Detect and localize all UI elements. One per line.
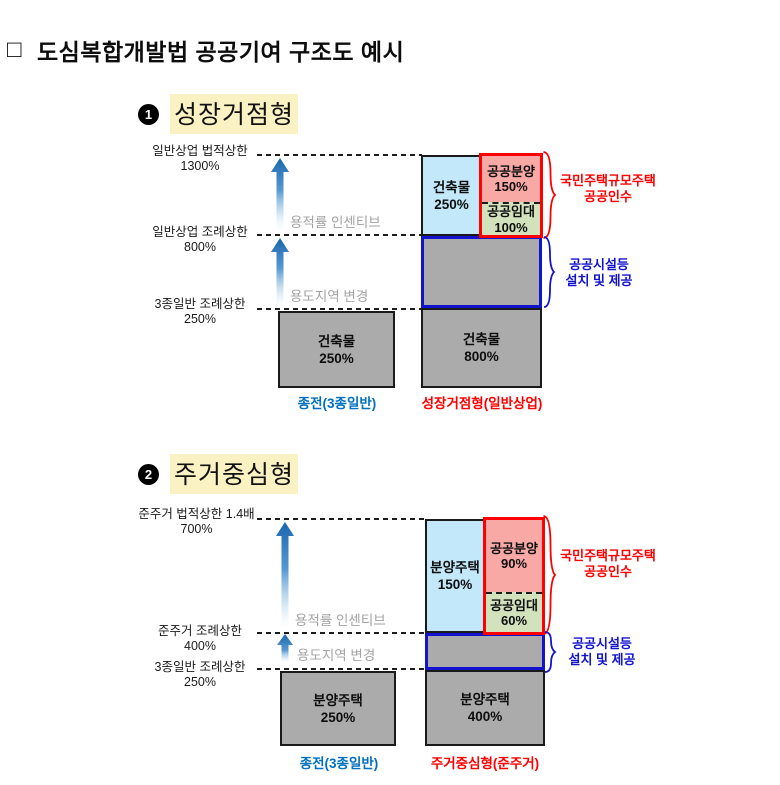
d1-public-sale-name: 공공분양 <box>487 164 535 180</box>
d1-blue-note-line1: 공공시설등 <box>548 257 650 273</box>
d1-blue-note-line2: 설치 및 제공 <box>548 273 650 289</box>
d1-axis3-name: 3종일반 조례상한 <box>143 297 257 312</box>
d1-before-box: 건축물 250% <box>278 311 395 388</box>
d1-before-box-pct: 250% <box>319 350 354 367</box>
d2-red-note-line1: 국민주택규모주택 <box>550 548 666 564</box>
section2-title: 주거중심형 <box>170 454 298 494</box>
d2-before-caption: 종전(3종일반) <box>274 752 404 772</box>
d2-red-note-line2: 공공인수 <box>550 564 666 580</box>
page-title: □ 도심복합개발법 공공기여 구조도 예시 <box>7 33 404 67</box>
d1-public-rent-name: 공공임대 <box>487 204 535 220</box>
d2-public-rent-box: 공공임대 60% <box>486 592 542 632</box>
d2-base-box-name: 분양주택 <box>460 691 510 708</box>
d1-before-caption: 종전(3종일반) <box>272 392 402 412</box>
d1-axis1-value: 1300% <box>143 159 257 174</box>
d1-red-note-line2: 공공인수 <box>550 189 666 205</box>
d2-axis3-value: 250% <box>143 675 257 690</box>
d1-incentive-label: 용적률 인센티브 <box>290 211 381 231</box>
d1-public-housing-group: 공공분양 150% 공공임대 100% <box>479 153 543 238</box>
d1-incentive-arrow-icon <box>270 158 290 230</box>
d2-before-box-name: 분양주택 <box>313 692 363 709</box>
d2-public-sale-box: 공공분양 90% <box>486 520 542 592</box>
d1-base-box: 건축물 800% <box>421 308 542 388</box>
d2-zone-change-label: 용도지역 변경 <box>297 644 375 664</box>
d1-zone-change-arrow-icon <box>270 238 290 306</box>
d1-axis-label-1: 일반상업 법적상한 1300% <box>143 144 257 174</box>
d2-before-box: 분양주택 250% <box>280 671 396 746</box>
page: □ 도심복합개발법 공공기여 구조도 예시 1 성장거점형 일반상업 법적상한 … <box>0 0 780 785</box>
d2-incentive-label: 용적률 인센티브 <box>295 609 386 629</box>
d1-public-rent-pct: 100% <box>494 220 527 236</box>
d2-axis1-name: 준주거 법적상한 1.4배 <box>136 507 257 522</box>
d2-building-box-pct: 150% <box>438 576 473 593</box>
d2-public-sale-name: 공공분양 <box>490 541 538 557</box>
d1-public-facility-note: 공공시설등 설치 및 제공 <box>548 257 650 288</box>
page-title-text: 도심복합개발법 공공기여 구조도 예시 <box>37 33 404 67</box>
d2-before-box-pct: 250% <box>321 709 356 726</box>
d1-after-caption: 성장거점형(일반상업) <box>410 392 554 412</box>
d2-building-box: 분양주택 150% <box>425 519 485 633</box>
d1-building-box-name: 건축물 <box>433 179 470 196</box>
d2-axis-label-2: 준주거 조례상한 400% <box>143 624 257 654</box>
d2-dashline-legal-limit <box>257 518 425 520</box>
d2-axis-label-1: 준주거 법적상한 1.4배 700% <box>136 507 257 537</box>
d2-public-housing-group: 공공분양 90% 공공임대 60% <box>483 517 545 635</box>
d1-dashline-base-limit <box>257 308 422 310</box>
d2-axis-label-3: 3종일반 조례상한 250% <box>143 660 257 690</box>
d2-public-facility-box <box>425 633 545 670</box>
d2-axis1-value: 700% <box>136 522 257 537</box>
d1-axis-label-2: 일반상업 조례상한 800% <box>143 225 257 255</box>
d2-blue-note-line2: 설치 및 제공 <box>551 652 653 668</box>
section2-number-icon: 2 <box>138 464 159 485</box>
d2-incentive-arrow-icon <box>275 522 295 628</box>
d1-axis1-name: 일반상업 법적상한 <box>143 144 257 159</box>
section2-heading: 2 주거중심형 <box>138 454 298 494</box>
d1-public-facility-box <box>421 236 542 308</box>
d2-public-facility-note: 공공시설등 설치 및 제공 <box>551 636 653 667</box>
d1-public-sale-pct: 150% <box>494 179 527 195</box>
d2-axis2-value: 400% <box>143 639 257 654</box>
d2-public-sale-pct: 90% <box>501 556 527 572</box>
d2-public-housing-note: 국민주택규모주택 공공인수 <box>550 548 666 579</box>
d1-axis3-value: 250% <box>143 312 257 327</box>
section1-title: 성장거점형 <box>170 94 298 134</box>
d1-axis2-value: 800% <box>143 240 257 255</box>
d2-blue-note-line1: 공공시설등 <box>551 636 653 652</box>
section1-heading: 1 성장거점형 <box>138 94 298 134</box>
d2-zone-change-arrow-icon <box>276 634 294 661</box>
d2-building-box-name: 분양주택 <box>430 559 480 576</box>
d1-base-box-pct: 800% <box>464 348 499 365</box>
d2-after-caption: 주거중심형(준주거) <box>412 752 558 772</box>
d1-dashline-legal-limit <box>257 154 422 156</box>
d1-public-sale-box: 공공분양 150% <box>482 156 540 202</box>
d2-axis3-name: 3종일반 조례상한 <box>143 660 257 675</box>
d1-public-rent-box: 공공임대 100% <box>482 202 540 235</box>
section1-number-icon: 1 <box>138 104 159 125</box>
square-bullet-icon: □ <box>7 38 22 62</box>
d2-base-box: 분양주택 400% <box>425 670 545 746</box>
d2-axis2-name: 준주거 조례상한 <box>143 624 257 639</box>
d2-public-rent-pct: 60% <box>501 613 527 629</box>
d1-axis-label-3: 3종일반 조례상한 250% <box>143 297 257 327</box>
d1-base-box-name: 건축물 <box>463 331 500 348</box>
d2-dashline-base-limit <box>257 668 425 670</box>
d1-building-box-pct: 250% <box>434 196 469 213</box>
d2-public-rent-name: 공공임대 <box>490 598 538 614</box>
d1-axis2-name: 일반상업 조례상한 <box>143 225 257 240</box>
d1-zone-change-label: 용도지역 변경 <box>290 285 368 305</box>
d1-before-box-name: 건축물 <box>318 333 355 350</box>
d2-base-box-pct: 400% <box>468 708 503 725</box>
d1-red-note-line1: 국민주택규모주택 <box>550 173 666 189</box>
d1-public-housing-note: 국민주택규모주택 공공인수 <box>550 173 666 204</box>
d1-dashline-ordinance-limit <box>257 234 422 236</box>
d1-building-box: 건축물 250% <box>421 155 482 236</box>
